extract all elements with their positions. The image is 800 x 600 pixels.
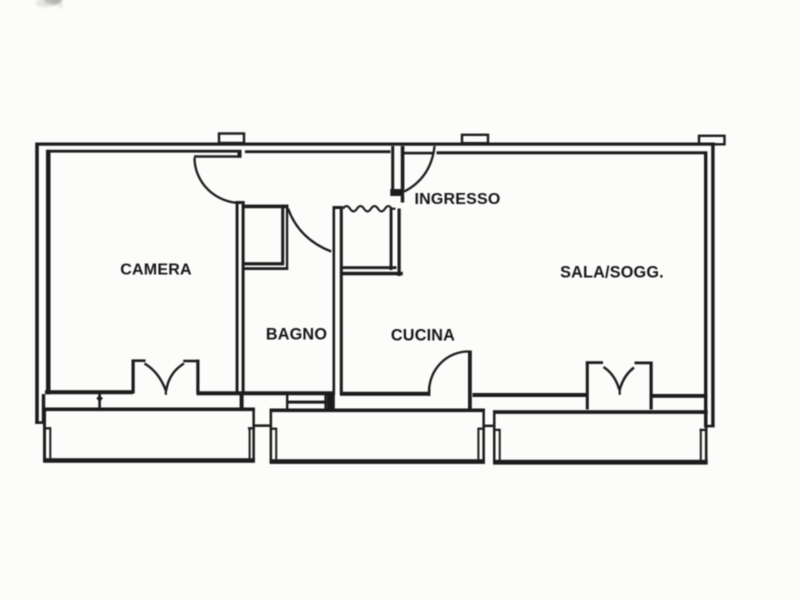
svg-text:BAGNO: BAGNO [266, 326, 327, 344]
svg-text:CUCINA: CUCINA [391, 327, 455, 345]
svg-text:CAMERA: CAMERA [120, 262, 192, 279]
svg-text:INGRESSO: INGRESSO [414, 191, 500, 208]
svg-text:SALA/SOGG.: SALA/SOGG. [560, 264, 664, 282]
